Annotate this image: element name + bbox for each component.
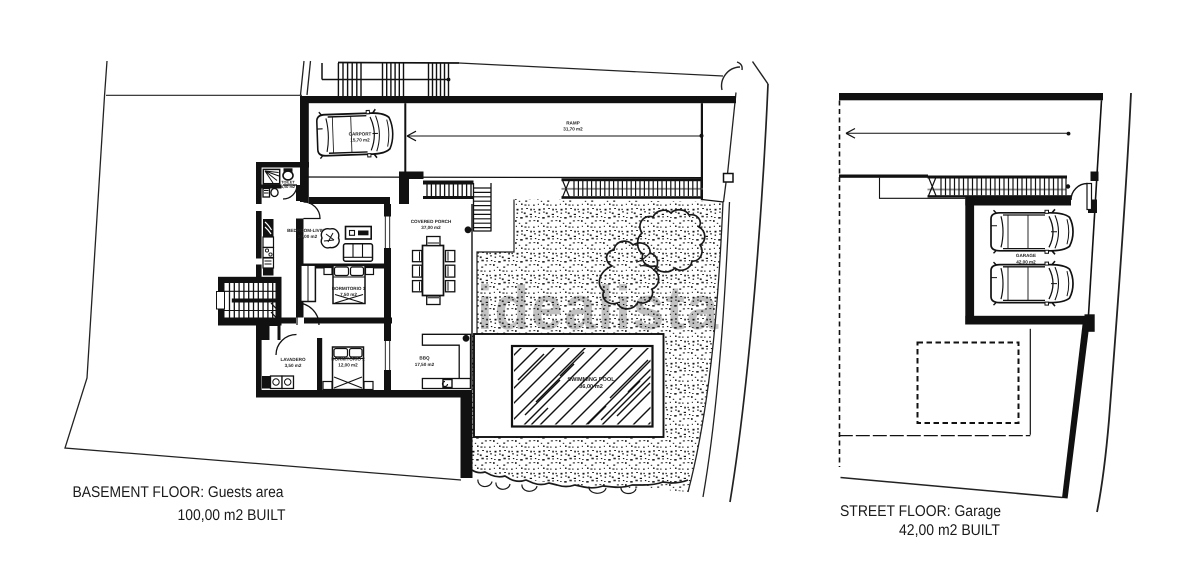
svg-text:GARAGE: GARAGE [1016,253,1036,258]
svg-text:CARPORT: CARPORT [349,132,372,137]
svg-text:100,00 m2 BUILT: 100,00 m2 BUILT [178,507,286,524]
svg-text:STREET FLOOR: Garage: STREET FLOOR: Garage [840,503,1001,520]
svg-text:BASEMENT FLOOR: Guests area: BASEMENT FLOOR: Guests area [73,484,284,501]
svg-text:DORMITORIO 1: DORMITORIO 1 [332,286,366,291]
svg-text:24,00 m2: 24,00 m2 [298,234,318,239]
svg-text:37,00 m2: 37,00 m2 [421,225,441,230]
svg-text:SWIMMING POOL: SWIMMING POOL [567,377,615,383]
svg-text:COVERED PORCH: COVERED PORCH [411,219,452,224]
svg-text:42,00 m2: 42,00 m2 [1016,260,1036,265]
svg-text:36,00 m2: 36,00 m2 [579,384,603,390]
svg-text:TOILET: TOILET [281,181,295,185]
svg-text:7,50 m2: 7,50 m2 [340,292,357,297]
svg-text:RAMP: RAMP [566,121,580,126]
svg-text:LAVADERO: LAVADERO [280,357,306,362]
svg-text:42,00 m2 BUILT: 42,00 m2 BUILT [899,522,1000,539]
svg-text:12,00 m2: 12,00 m2 [338,363,358,368]
svg-text:BBQ: BBQ [419,356,430,361]
svg-text:17,50 m2: 17,50 m2 [415,362,435,367]
svg-text:31,70 m2: 31,70 m2 [563,127,583,132]
svg-text:DORMITORIO 2: DORMITORIO 2 [331,357,365,362]
svg-text:15,70 m2: 15,70 m2 [350,138,370,143]
svg-text:3,50 m2: 3,50 m2 [285,363,302,368]
